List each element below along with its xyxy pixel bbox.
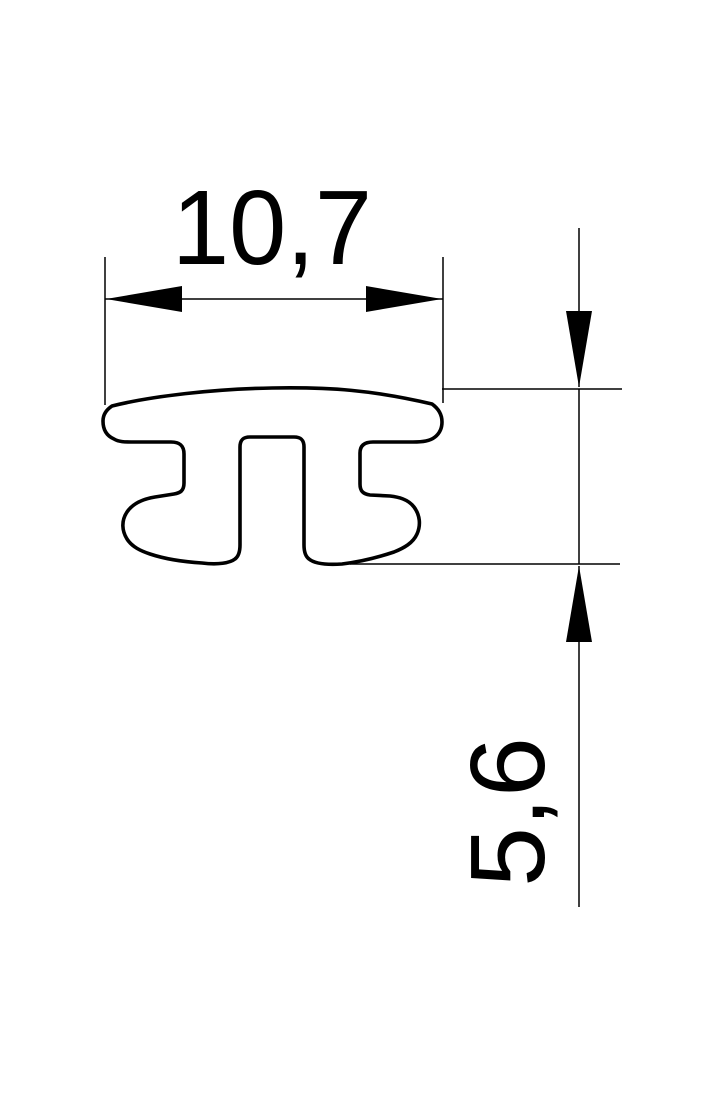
width-dimension-label: 10,7 — [172, 169, 372, 287]
width-arrow-left — [106, 286, 182, 312]
height-dimension: 5,6 — [350, 228, 622, 907]
technical-drawing: 10,7 5,6 — [0, 0, 714, 1103]
height-arrow-down — [566, 311, 592, 387]
profile-outline — [103, 388, 442, 565]
drawing-canvas: 10,7 5,6 — [0, 0, 714, 1103]
width-dimension: 10,7 — [105, 169, 443, 405]
height-arrow-up — [566, 566, 592, 642]
width-arrow-right — [366, 286, 442, 312]
profile-cross-section — [103, 388, 442, 565]
height-dimension-label: 5,6 — [449, 737, 567, 887]
